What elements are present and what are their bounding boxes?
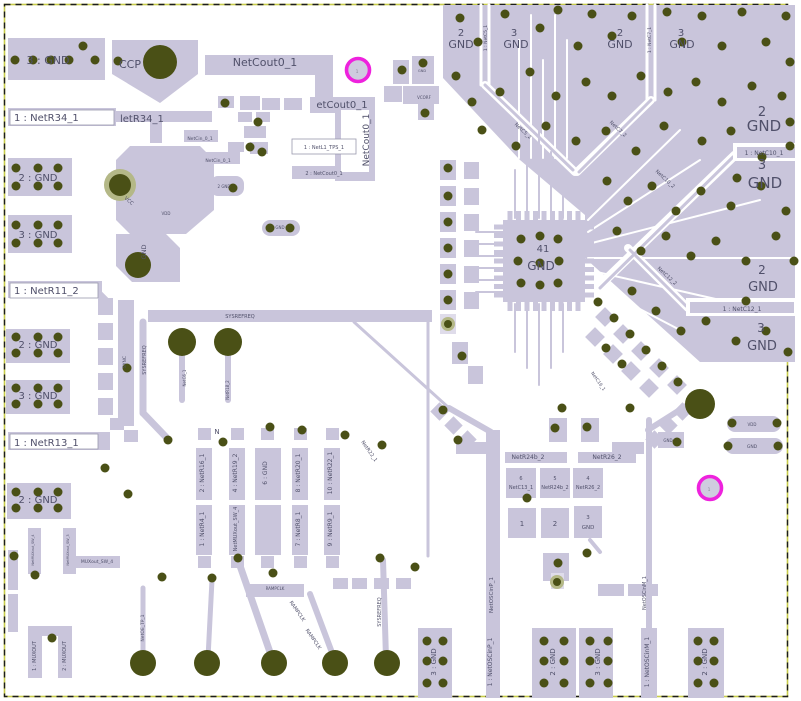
chip-pad[interactable] [525, 211, 530, 220]
chip-pad[interactable] [494, 225, 503, 230]
net-label[interactable]: 1 : NetR34_1 [14, 113, 79, 124]
net-label[interactable]: 2 : NetCout0_1 [305, 171, 342, 177]
chip-pad[interactable] [533, 211, 538, 220]
pad[interactable] [472, 442, 488, 454]
via[interactable] [618, 360, 627, 369]
via[interactable] [536, 232, 545, 241]
net-label[interactable]: CCP [119, 58, 141, 71]
net-label[interactable]: 2 : GND [18, 340, 57, 351]
pad[interactable] [118, 300, 134, 314]
via[interactable] [778, 92, 787, 101]
via[interactable] [444, 218, 453, 227]
drill-hole[interactable] [214, 328, 242, 356]
chip-pad[interactable] [494, 284, 503, 289]
via[interactable] [786, 118, 795, 127]
net-label[interactable]: NetMUXout_SW_3 [66, 534, 70, 565]
chip-pad[interactable] [585, 259, 594, 264]
net-label[interactable]: etCout0_1 [316, 100, 367, 111]
via[interactable] [610, 314, 619, 323]
via[interactable] [624, 197, 633, 206]
net-label[interactable]: 2 : GND [18, 495, 57, 506]
net-label[interactable]: MUXout_SW_4 [81, 559, 113, 565]
via[interactable] [219, 438, 228, 447]
via[interactable] [158, 573, 167, 582]
via[interactable] [718, 42, 727, 51]
net-label[interactable]: NetCout0_1 [233, 56, 298, 69]
chip-pad[interactable] [576, 211, 581, 220]
via[interactable] [728, 419, 737, 428]
pad[interactable] [261, 556, 274, 568]
via[interactable] [710, 637, 719, 646]
via[interactable] [738, 8, 747, 17]
chip-pad[interactable] [494, 250, 503, 255]
via[interactable] [269, 569, 278, 578]
chip-pad[interactable] [494, 259, 503, 264]
pad[interactable] [240, 96, 260, 110]
pcb-editor-canvas[interactable]: 3 : GNDCCPNetCout0_11 : NetR34_1letR34_1… [0, 0, 801, 701]
via[interactable] [101, 464, 110, 473]
net-label[interactable]: 7 : NetR8_1 [295, 511, 302, 546]
via[interactable] [608, 92, 617, 101]
via[interactable] [697, 187, 706, 196]
net-label[interactable]: 3 [586, 515, 590, 521]
via[interactable] [526, 68, 535, 77]
chip-pad[interactable] [585, 250, 594, 255]
net-label[interactable]: 2 : GND [549, 648, 557, 675]
via[interactable] [658, 362, 667, 371]
via[interactable] [687, 252, 696, 261]
copper-pour[interactable] [148, 310, 432, 322]
via[interactable] [604, 657, 613, 666]
net-label[interactable]: GND [140, 245, 148, 260]
via[interactable] [694, 637, 703, 646]
net-label[interactable]: 1 : NetR13_1 [14, 438, 79, 449]
via[interactable] [718, 98, 727, 107]
via[interactable] [698, 12, 707, 21]
net-label[interactable]: NetCin_0_1 [205, 158, 231, 164]
net-label[interactable]: GND [748, 280, 778, 295]
pad[interactable] [228, 142, 244, 152]
pad[interactable] [374, 578, 389, 589]
net-label[interactable]: NetC6_1 [182, 369, 187, 386]
via[interactable] [710, 679, 719, 688]
via[interactable] [702, 317, 711, 326]
via[interactable] [398, 66, 407, 75]
via[interactable] [553, 578, 561, 586]
via[interactable] [523, 494, 532, 503]
via[interactable] [652, 307, 661, 316]
via[interactable] [258, 148, 267, 157]
via[interactable] [732, 337, 741, 346]
net-label[interactable]: 5 [553, 476, 556, 482]
pad[interactable] [352, 578, 367, 589]
via[interactable] [536, 281, 545, 290]
via[interactable] [54, 164, 63, 173]
via[interactable] [710, 657, 719, 666]
via[interactable] [54, 221, 63, 230]
via[interactable] [774, 442, 783, 451]
via[interactable] [164, 436, 173, 445]
via[interactable] [784, 348, 793, 357]
pad[interactable] [384, 86, 402, 102]
via[interactable] [11, 56, 20, 65]
chip-pad[interactable] [567, 211, 572, 220]
via[interactable] [583, 423, 592, 432]
net-label[interactable]: 1 : NetC7_1 [647, 27, 653, 53]
via[interactable] [727, 202, 736, 211]
via[interactable] [478, 126, 487, 135]
net-label[interactable]: NetC13_1 [509, 485, 533, 491]
via[interactable] [444, 320, 452, 328]
via[interactable] [673, 438, 682, 447]
via[interactable] [341, 431, 350, 440]
via[interactable] [603, 177, 612, 186]
via[interactable] [444, 244, 453, 253]
net-label[interactable]: NetOSCinM_1 [642, 576, 648, 610]
chip-pad[interactable] [585, 293, 594, 298]
via[interactable] [628, 12, 637, 21]
pad[interactable] [598, 584, 624, 596]
drill-hole[interactable] [261, 650, 287, 676]
net-label[interactable]: GND [747, 339, 777, 354]
chip-pad[interactable] [550, 211, 555, 220]
net-label[interactable]: GND [582, 525, 595, 531]
net-label[interactable]: 1 : NetC12_1 [723, 306, 762, 313]
via[interactable] [79, 42, 88, 51]
via[interactable] [456, 14, 465, 23]
chip-pad[interactable] [533, 302, 538, 311]
via[interactable] [733, 174, 742, 183]
via[interactable] [637, 247, 646, 256]
via[interactable] [604, 637, 613, 646]
via[interactable] [540, 657, 549, 666]
via[interactable] [554, 559, 563, 568]
net-label[interactable]: SYNC [122, 356, 128, 368]
net-label[interactable]: 1 [520, 520, 524, 528]
net-label[interactable]: 4 [586, 476, 589, 482]
net-label[interactable]: 8 : NetR20_1 [295, 453, 302, 492]
via[interactable] [444, 270, 453, 279]
via[interactable] [10, 552, 19, 561]
drill-hole[interactable] [194, 650, 220, 676]
via[interactable] [572, 137, 581, 146]
net-label[interactable]: GND [527, 259, 555, 273]
via[interactable] [221, 99, 230, 108]
copper-pour[interactable] [8, 594, 18, 632]
via[interactable] [782, 12, 791, 21]
via[interactable] [124, 490, 133, 499]
pad[interactable] [238, 112, 252, 122]
via[interactable] [692, 78, 701, 87]
chip-pad[interactable] [508, 211, 513, 220]
pad[interactable] [98, 398, 113, 415]
net-label[interactable]: letR34_1 [120, 114, 164, 125]
via[interactable] [782, 207, 791, 216]
net-label[interactable]: SYSREFREQ [142, 345, 148, 375]
via[interactable] [419, 59, 428, 68]
via[interactable] [496, 88, 505, 97]
via[interactable] [560, 679, 569, 688]
pad[interactable] [231, 428, 244, 440]
via[interactable] [604, 679, 613, 688]
net-label[interactable]: 9 : NetR9_1 [327, 511, 334, 546]
pad[interactable] [326, 428, 339, 440]
via[interactable] [602, 344, 611, 353]
via[interactable] [286, 224, 295, 233]
pad[interactable] [464, 266, 479, 283]
chip-pad[interactable] [508, 302, 513, 311]
net-label[interactable]: NetR26_2 [592, 454, 621, 461]
copper-pour[interactable] [255, 505, 281, 555]
via[interactable] [602, 127, 611, 136]
via[interactable] [423, 637, 432, 646]
via[interactable] [677, 327, 686, 336]
via[interactable] [786, 58, 795, 67]
chip-pad[interactable] [576, 302, 581, 311]
net-label[interactable]: 1 : NetR4_1 [199, 511, 206, 546]
net-label[interactable]: 2 : GND [701, 648, 709, 675]
via[interactable] [536, 24, 545, 33]
via[interactable] [613, 227, 622, 236]
via[interactable] [586, 637, 595, 646]
drill-hole[interactable] [685, 389, 715, 419]
via[interactable] [672, 207, 681, 216]
via[interactable] [91, 56, 100, 65]
via[interactable] [501, 10, 510, 19]
pad[interactable] [98, 323, 113, 340]
net-label[interactable]: 1 : MUXOUT [32, 640, 38, 671]
via[interactable] [34, 164, 43, 173]
net-label[interactable]: GND [607, 38, 632, 51]
net-label[interactable]: GND [748, 174, 782, 192]
via[interactable] [474, 38, 483, 47]
via[interactable] [664, 88, 673, 97]
via[interactable] [552, 92, 561, 101]
pad[interactable] [262, 98, 280, 110]
net-label[interactable]: NetMUXout_SW_4 [233, 507, 239, 552]
via[interactable] [378, 441, 387, 450]
net-label[interactable]: 4 : NetR19_2 [232, 453, 239, 492]
via[interactable] [772, 232, 781, 241]
chip-pad[interactable] [559, 211, 564, 220]
net-label[interactable]: NetR18_2 [225, 380, 230, 400]
via[interactable] [724, 442, 733, 451]
via[interactable] [628, 287, 637, 296]
net-label[interactable]: NetR26_2 [576, 485, 600, 491]
via[interactable] [790, 257, 799, 266]
net-label[interactable]: 2 : NetR16_1 [199, 453, 206, 492]
pad[interactable] [244, 126, 266, 138]
via[interactable] [554, 279, 563, 288]
via[interactable] [626, 330, 635, 339]
via[interactable] [254, 118, 263, 127]
net-label[interactable]: 1 : NetC10_1 [745, 150, 784, 157]
pad[interactable] [464, 188, 479, 205]
pad[interactable] [506, 468, 536, 498]
net-label[interactable]: 10 : NetR22_1 [327, 452, 334, 495]
net-label[interactable]: GND [663, 438, 672, 443]
pad[interactable] [98, 298, 113, 315]
net-label[interactable]: 6 [519, 476, 522, 482]
via[interactable] [12, 164, 21, 173]
drill-hole[interactable] [374, 650, 400, 676]
net-label[interactable]: VDD [162, 211, 171, 216]
pad[interactable] [464, 214, 479, 231]
via[interactable] [31, 571, 40, 580]
via[interactable] [514, 257, 523, 266]
via[interactable] [454, 436, 463, 445]
chip-pad[interactable] [494, 276, 503, 281]
chip-pad[interactable] [516, 211, 521, 220]
net-label[interactable]: 41 [537, 244, 550, 255]
via[interactable] [712, 237, 721, 246]
via[interactable] [660, 122, 669, 131]
via[interactable] [773, 419, 782, 428]
via[interactable] [582, 78, 591, 87]
chip-pad[interactable] [516, 302, 521, 311]
via[interactable] [583, 549, 592, 558]
drill-hole[interactable] [322, 650, 348, 676]
via[interactable] [439, 679, 448, 688]
chip-pad[interactable] [542, 302, 547, 311]
drill-hole[interactable] [143, 45, 177, 79]
via[interactable] [444, 296, 453, 305]
pad[interactable] [464, 240, 479, 257]
net-label[interactable]: 1 [356, 69, 359, 75]
chip-pad[interactable] [585, 276, 594, 281]
chip-pad[interactable] [585, 242, 594, 247]
via[interactable] [626, 404, 635, 413]
via[interactable] [574, 42, 583, 51]
net-label[interactable]: NetR24b_2 [512, 454, 545, 461]
net-label[interactable]: 1 : NetC5_1 [483, 25, 489, 51]
via[interactable] [266, 224, 275, 233]
via[interactable] [554, 6, 563, 15]
net-label[interactable]: 2 [758, 263, 766, 277]
via[interactable] [48, 634, 57, 643]
chip-pad[interactable] [585, 284, 594, 289]
pad[interactable] [333, 578, 348, 589]
via[interactable] [234, 554, 243, 563]
net-label[interactable]: 2 : MUXOUT [62, 640, 68, 671]
via[interactable] [12, 221, 21, 230]
net-label[interactable]: NetOSCinP_1 [489, 577, 495, 613]
via[interactable] [421, 109, 430, 118]
chip-pad[interactable] [494, 267, 503, 272]
via[interactable] [742, 297, 751, 306]
net-label[interactable]: NetOE_TP_1 [140, 614, 146, 641]
via[interactable] [298, 426, 307, 435]
via[interactable] [674, 378, 683, 387]
via[interactable] [632, 147, 641, 156]
net-label[interactable]: 3 : GND [27, 54, 70, 67]
net-label[interactable]: SYSREFREQ [377, 597, 383, 627]
via[interactable] [698, 137, 707, 146]
via[interactable] [551, 424, 560, 433]
net-label[interactable]: 2 : GND [18, 173, 57, 184]
net-label[interactable]: GND [275, 225, 284, 230]
net-label[interactable]: VDD [748, 422, 757, 427]
pcb-layout-svg[interactable]: 3 : GNDCCPNetCout0_11 : NetR34_1letR34_1… [0, 0, 801, 701]
chip-pad[interactable] [494, 242, 503, 247]
via[interactable] [512, 142, 521, 151]
via[interactable] [376, 554, 385, 563]
net-label[interactable]: GND [747, 444, 758, 450]
via[interactable] [642, 346, 651, 355]
via[interactable] [742, 257, 751, 266]
net-label[interactable]: 3 [758, 158, 766, 173]
net-label[interactable]: GND [503, 38, 528, 51]
net-label[interactable]: NetCout0_1 [362, 114, 372, 167]
pad[interactable] [98, 348, 113, 365]
pad[interactable] [464, 292, 479, 309]
pad[interactable] [573, 468, 603, 498]
via[interactable] [246, 143, 255, 152]
via[interactable] [662, 232, 671, 241]
via[interactable] [540, 679, 549, 688]
pad[interactable] [284, 98, 302, 110]
pad[interactable] [468, 366, 483, 384]
net-label[interactable]: 3 : GND [18, 230, 57, 241]
pad[interactable] [98, 373, 113, 390]
via[interactable] [588, 10, 597, 19]
pad[interactable] [198, 556, 211, 568]
net-label[interactable]: GND [418, 69, 426, 73]
chip-pad[interactable] [525, 302, 530, 311]
via[interactable] [594, 298, 603, 307]
via[interactable] [762, 38, 771, 47]
via[interactable] [542, 122, 551, 131]
net-label[interactable]: 3 [757, 321, 765, 335]
net-label[interactable]: 1 : NetOSCinP_1 [487, 637, 494, 686]
net-label[interactable]: 3 : GND [594, 648, 602, 675]
via[interactable] [444, 192, 453, 201]
chip-pad[interactable] [550, 302, 555, 311]
pad[interactable] [540, 468, 570, 498]
via[interactable] [560, 657, 569, 666]
via[interactable] [208, 574, 217, 583]
net-label[interactable]: 2 [553, 520, 557, 528]
via[interactable] [34, 221, 43, 230]
via[interactable] [554, 235, 563, 244]
net-label[interactable]: 3 : GND [430, 648, 438, 675]
drill-hole[interactable] [130, 650, 156, 676]
pad[interactable] [574, 506, 602, 538]
via[interactable] [266, 423, 275, 432]
via[interactable] [555, 257, 564, 266]
net-label[interactable]: 1 [708, 487, 711, 493]
net-label[interactable]: NetMUXout_SW_4 [31, 534, 35, 566]
net-label[interactable]: VCORF [417, 95, 431, 100]
chip-pad[interactable] [585, 225, 594, 230]
via[interactable] [560, 637, 569, 646]
via[interactable] [468, 98, 477, 107]
via[interactable] [517, 235, 526, 244]
via[interactable] [458, 352, 467, 361]
via[interactable] [444, 164, 453, 173]
via[interactable] [648, 182, 657, 191]
net-label[interactable]: SYSREFREQ [225, 314, 255, 320]
via[interactable] [411, 563, 420, 572]
net-label[interactable]: GND [448, 38, 473, 51]
pad[interactable] [124, 430, 138, 442]
via[interactable] [439, 657, 448, 666]
pad[interactable] [198, 428, 211, 440]
net-label[interactable]: 1 : NetL1_TPS_1 [304, 145, 344, 151]
net-label[interactable]: GND [747, 117, 781, 135]
chip-pad[interactable] [494, 233, 503, 238]
net-label[interactable]: 3 : GND [18, 391, 57, 402]
